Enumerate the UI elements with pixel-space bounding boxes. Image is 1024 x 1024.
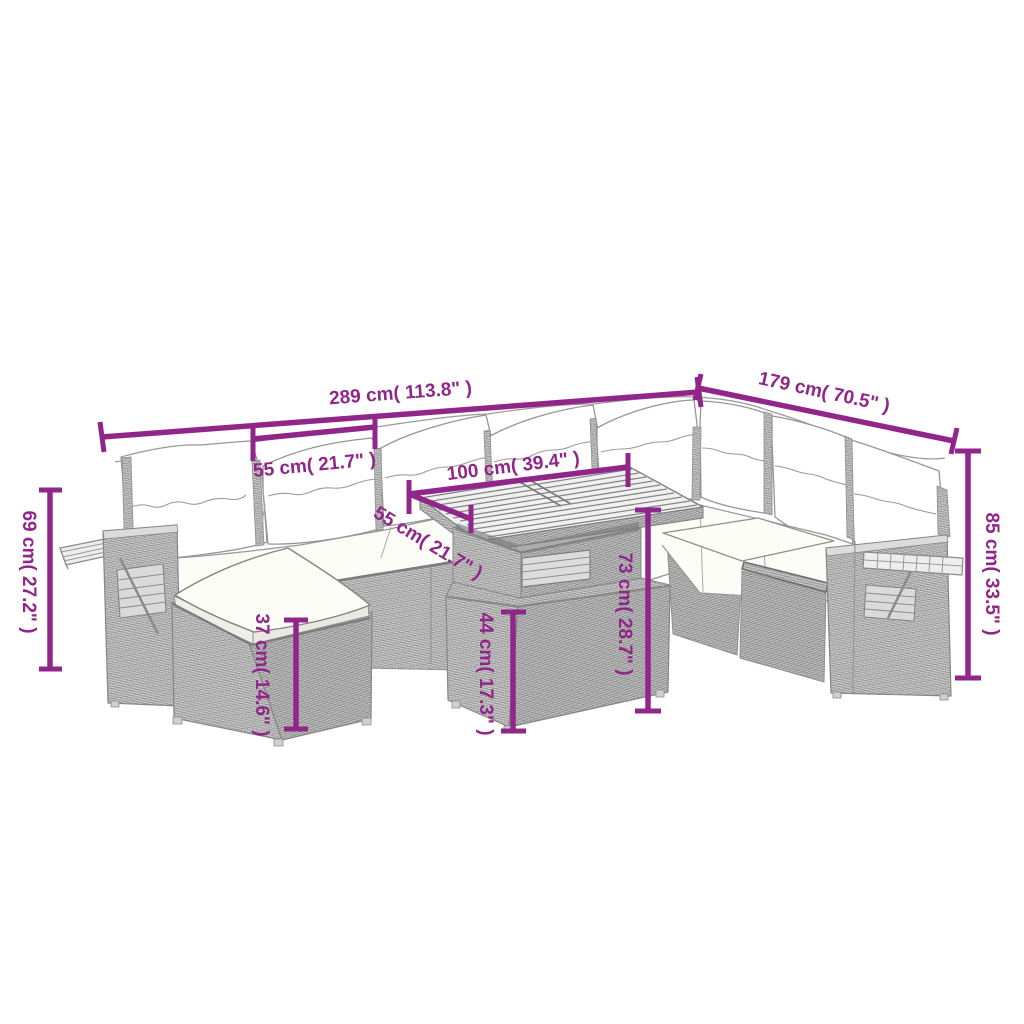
svg-text:37 cm( 14.6" ): 37 cm( 14.6" ) bbox=[251, 613, 272, 736]
svg-text:73 cm( 28.7" ): 73 cm( 28.7" ) bbox=[614, 552, 635, 675]
svg-text:85 cm( 33.5" ): 85 cm( 33.5" ) bbox=[981, 512, 1002, 635]
svg-text:69 cm( 27.2" ): 69 cm( 27.2" ) bbox=[18, 510, 39, 633]
svg-text:44 cm( 17.3" ): 44 cm( 17.3" ) bbox=[475, 612, 496, 735]
